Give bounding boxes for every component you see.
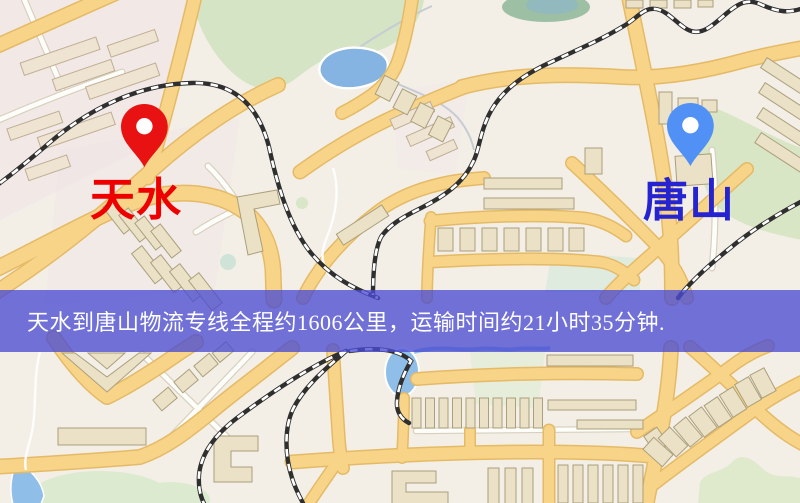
route-info-banner: 天水到唐山物流专线全程约1606公里，运输时间约21小时35分钟. — [0, 290, 800, 352]
origin-city-label: 天水 — [90, 178, 182, 223]
destination-city-label: 唐山 — [643, 179, 735, 224]
route-info-text: 天水到唐山物流专线全程约1606公里，运输时间约21小时35分钟. — [27, 305, 665, 337]
map-screenshot: 天水 唐山 天水到唐山物流专线全程约1606公里，运输时间约21小时35分钟. — [0, 0, 800, 503]
map-canvas[interactable] — [0, 0, 800, 503]
